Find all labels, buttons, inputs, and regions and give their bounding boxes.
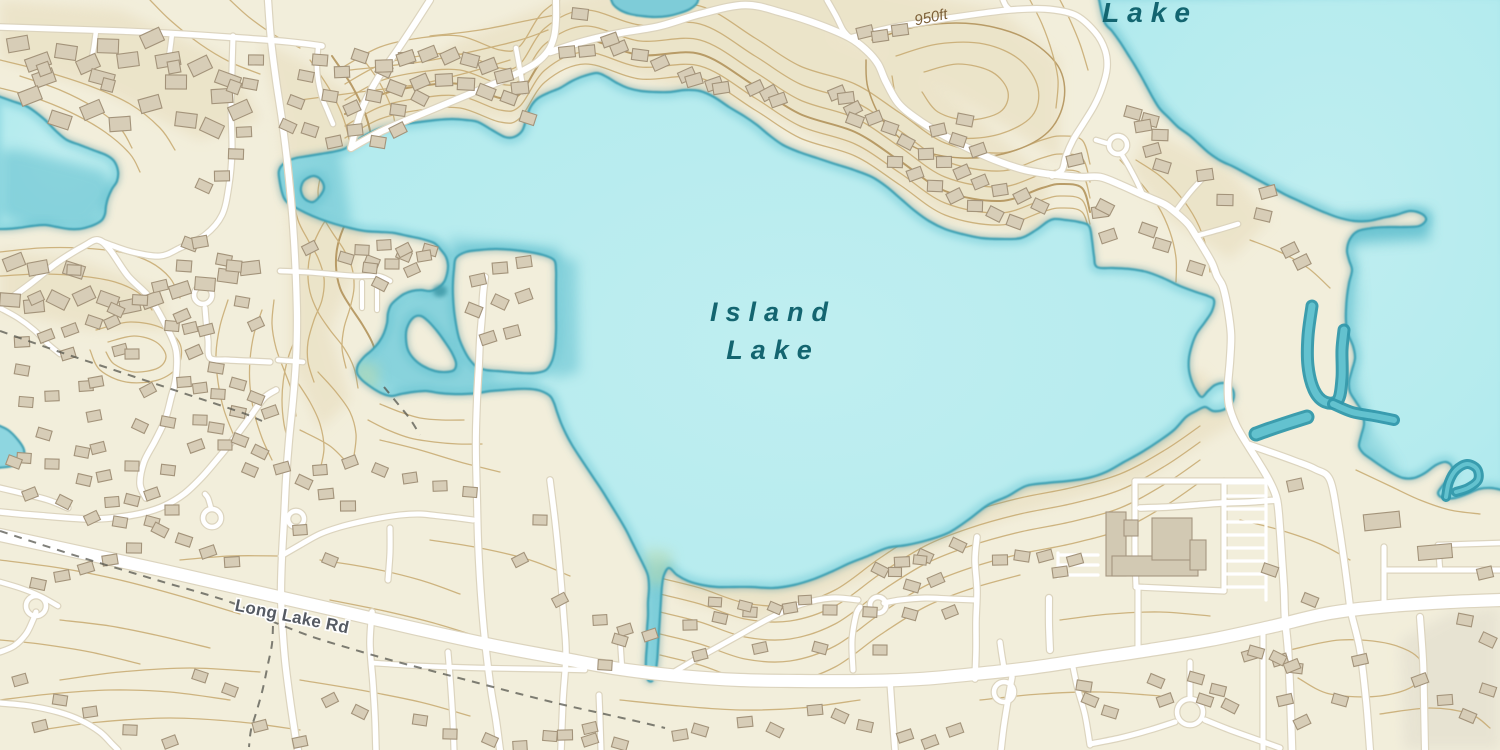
svg-text:Island: Island <box>710 297 836 327</box>
svg-text:Lake: Lake <box>726 335 820 365</box>
svg-text:Lake: Lake <box>1102 0 1198 28</box>
